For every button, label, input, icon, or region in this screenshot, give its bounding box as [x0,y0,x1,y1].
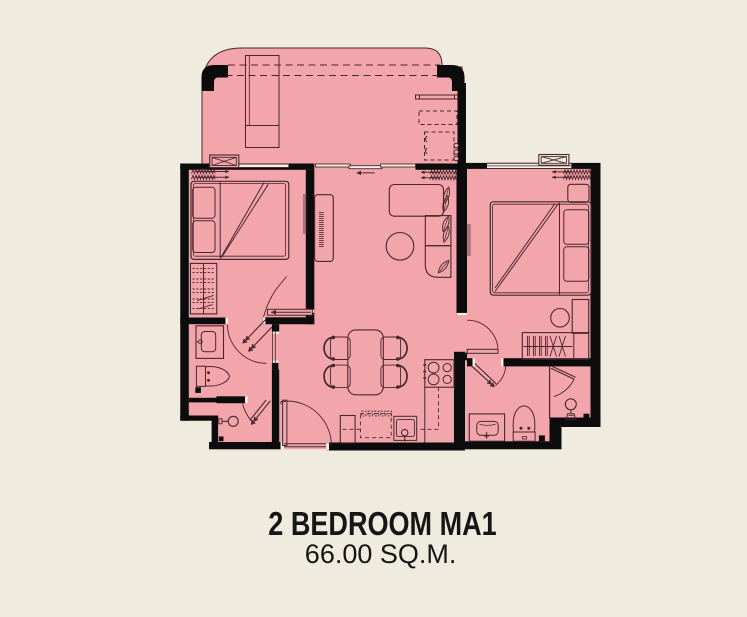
svg-text:66.00 SQ.M.: 66.00 SQ.M. [305,539,457,569]
svg-text:2 BEDROOM MA1: 2 BEDROOM MA1 [268,507,496,543]
